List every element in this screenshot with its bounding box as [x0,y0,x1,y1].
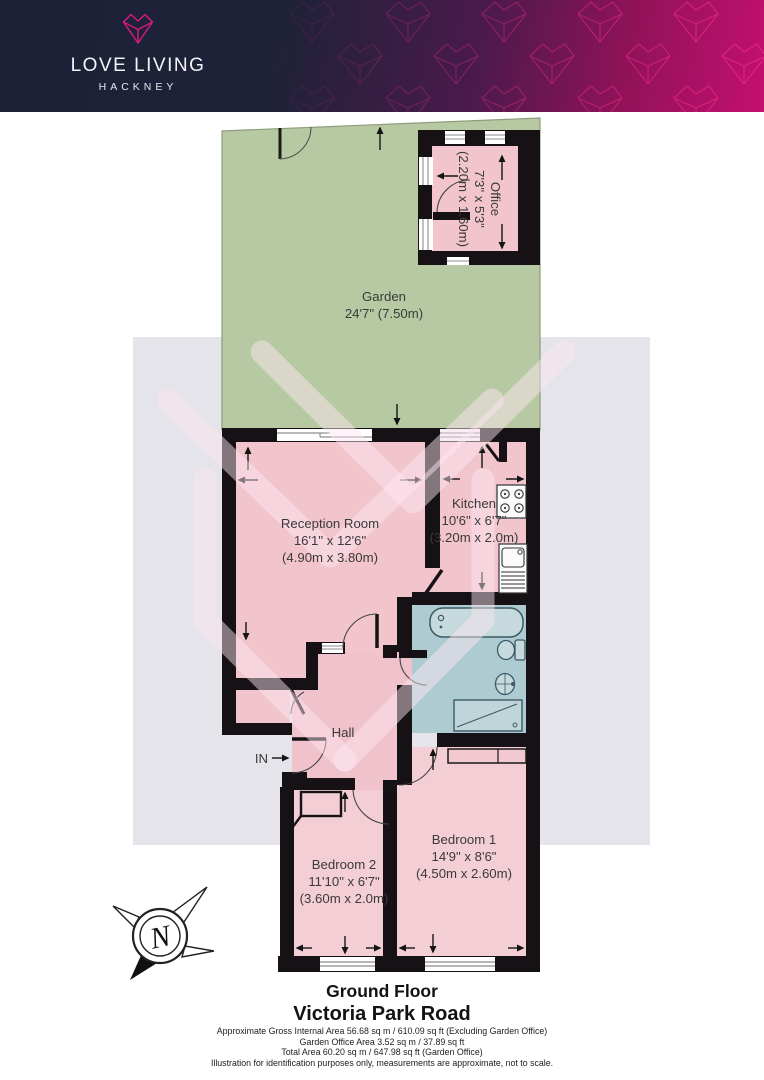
svg-text:(2.20m x 1.60m): (2.20m x 1.60m) [456,151,471,247]
svg-text:Reception Room: Reception Room [281,516,379,531]
kitchen-sink-icon [499,544,527,593]
floor-plan: Garden 24'7" (7.50m) Office 7'3" x 5'3" … [0,0,764,1080]
area-line-2: Garden Office Area 3.52 sq m / 37.89 sq … [0,1037,764,1048]
floorplan-page: LOVE LIVING HACKNEY [0,0,764,1080]
basin-icon [496,674,516,695]
svg-text:Garden: Garden [362,289,406,304]
svg-text:Office: Office [488,182,503,216]
svg-text:Bedroom 2: Bedroom 2 [312,857,377,872]
address-title: Victoria Park Road [0,1002,764,1026]
svg-text:Kitchen: Kitchen [452,496,496,511]
disclaimer: Illustration for identification purposes… [0,1058,764,1069]
svg-text:11'10" x 6'7": 11'10" x 6'7" [308,874,380,889]
svg-text:10'6" x 6'7": 10'6" x 6'7" [442,513,507,528]
label-reception: Reception Room 16'1" x 12'6" (4.90m x 3.… [281,516,379,565]
shower-icon [454,700,522,731]
plan-footer: Ground Floor Victoria Park Road Approxim… [0,981,764,1068]
svg-text:(3.60m x 2.0m): (3.60m x 2.0m) [300,891,389,906]
label-hall: Hall [332,725,355,740]
toilet-icon [498,640,526,660]
compass-icon: N [113,887,214,980]
svg-text:16'1" x 12'6": 16'1" x 12'6" [294,533,367,548]
svg-text:24'7" (7.50m): 24'7" (7.50m) [345,306,423,321]
svg-text:(4.50m x 2.60m): (4.50m x 2.60m) [416,866,512,881]
svg-text:Bedroom 1: Bedroom 1 [432,832,497,847]
area-line-1: Approximate Gross Internal Area 56.68 sq… [0,1026,764,1037]
bedroom1-wardrobe [448,749,526,763]
svg-text:7'3" x 5'3": 7'3" x 5'3" [472,170,487,228]
label-bedroom2: Bedroom 2 11'10" x 6'7" (3.60m x 2.0m) [300,857,389,906]
svg-text:(3.20m x 2.0m): (3.20m x 2.0m) [430,530,519,545]
label-entrance-in: IN [255,751,268,766]
area-line-3: Total Area 60.20 sq m / 647.98 sq ft (Ga… [0,1047,764,1058]
floor-title: Ground Floor [0,981,764,1001]
svg-text:(4.90m x 3.80m): (4.90m x 3.80m) [282,550,378,565]
svg-text:14'9" x 8'6": 14'9" x 8'6" [432,849,497,864]
